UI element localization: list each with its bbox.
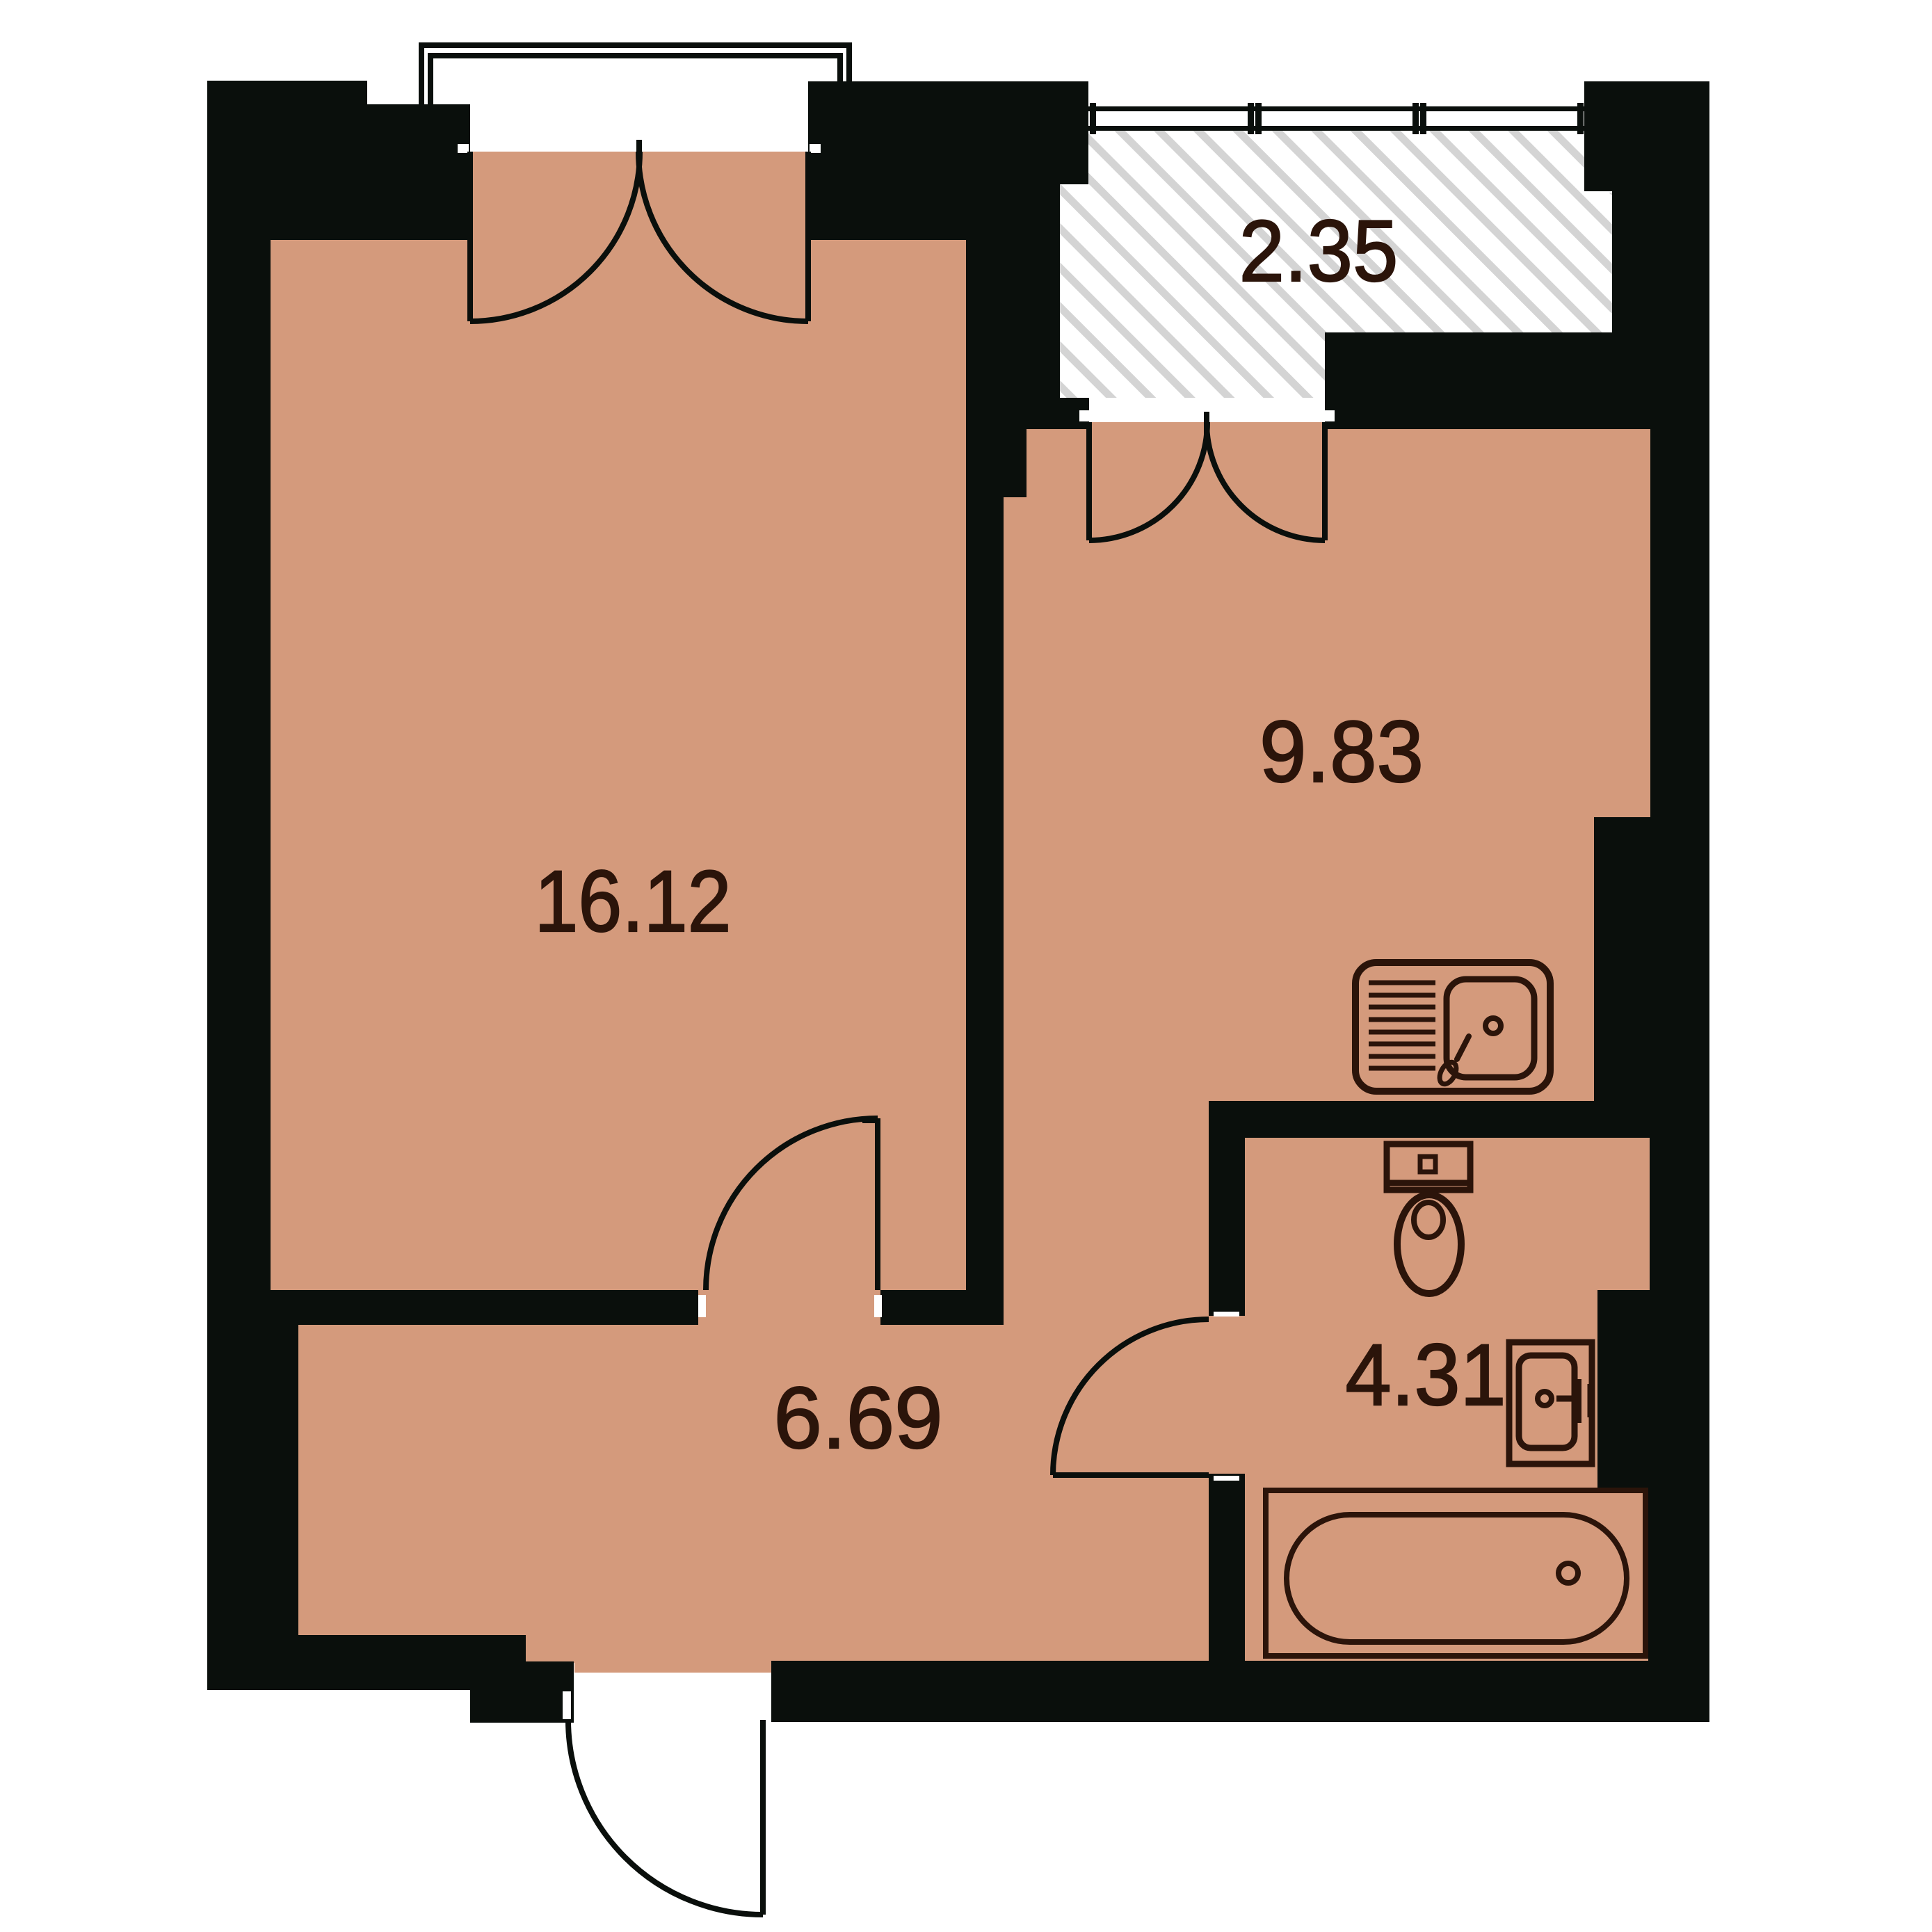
- svg-text:9.83: 9.83: [1259, 704, 1424, 800]
- svg-text:16.12: 16.12: [534, 853, 731, 950]
- svg-text:2.35: 2.35: [1239, 202, 1399, 300]
- svg-text:4.31: 4.31: [1345, 1326, 1506, 1423]
- svg-text:6.69: 6.69: [773, 1370, 942, 1467]
